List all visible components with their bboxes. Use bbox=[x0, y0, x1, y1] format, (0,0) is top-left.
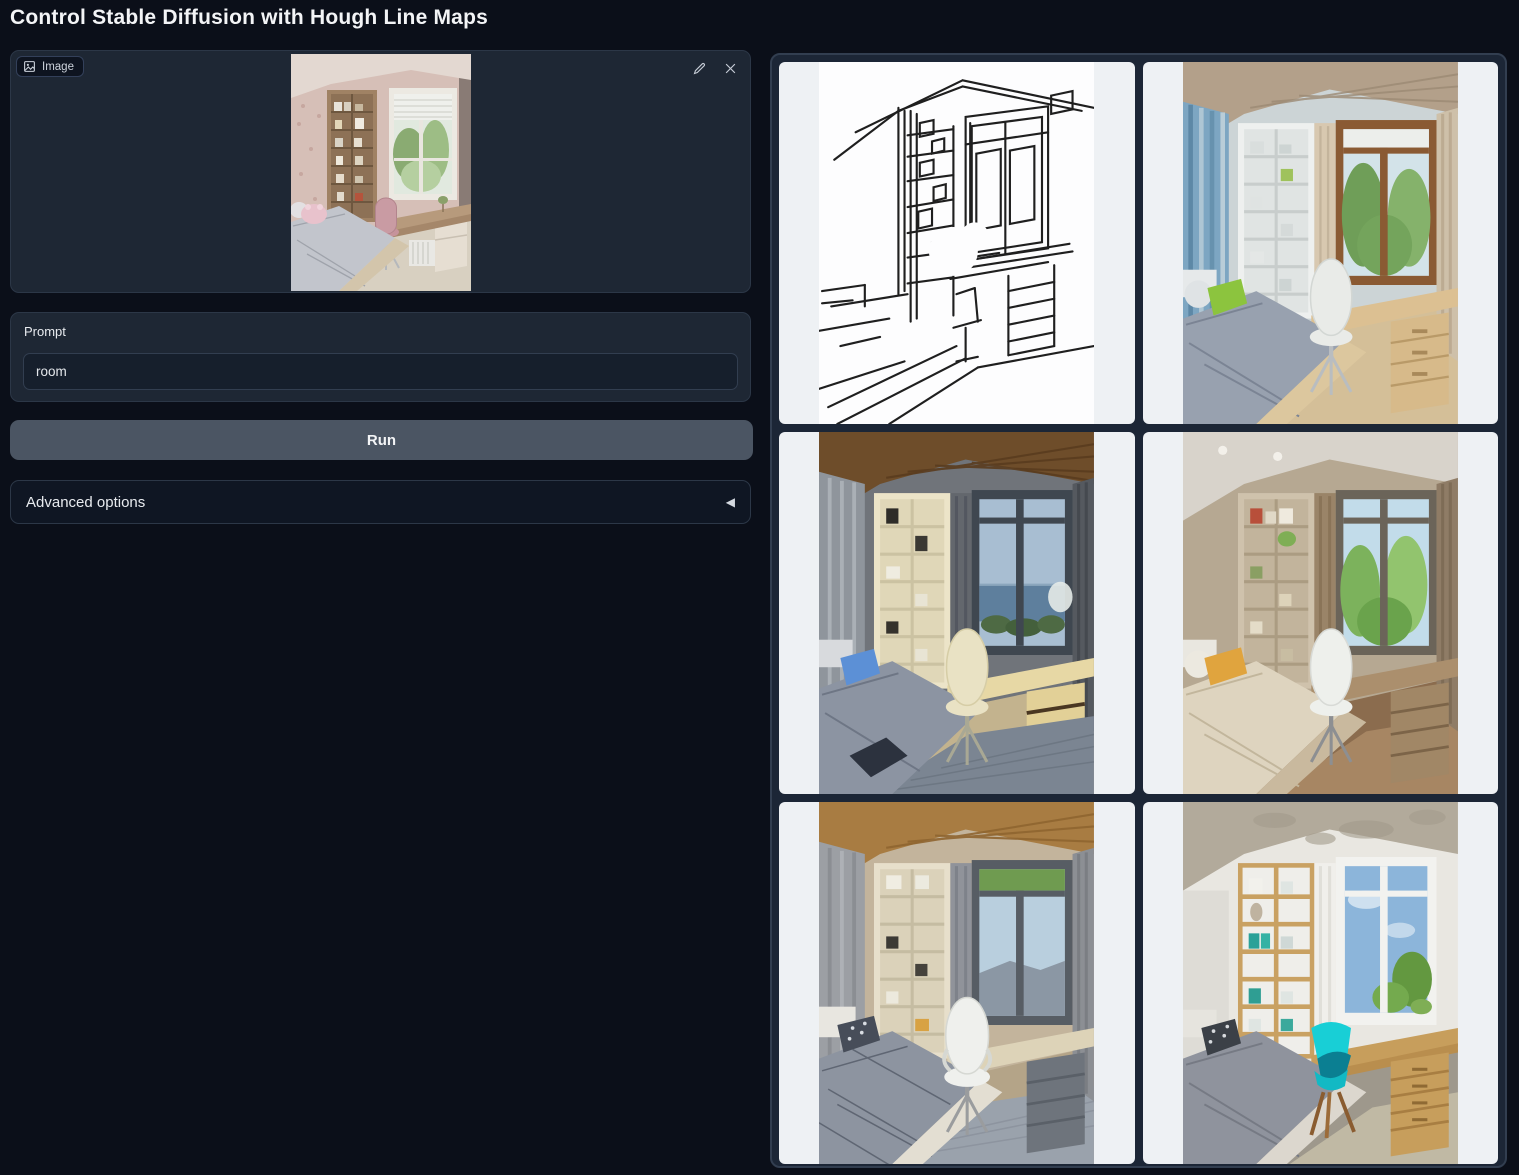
uploaded-room-photo bbox=[291, 54, 471, 291]
hough-line-map-image bbox=[819, 62, 1094, 424]
generated-room-image-5 bbox=[1183, 802, 1458, 1164]
gallery-item-generated-5[interactable] bbox=[1143, 802, 1499, 1164]
edit-image-button[interactable] bbox=[690, 59, 709, 78]
gallery-item-hough-line-map[interactable] bbox=[779, 62, 1135, 424]
clear-image-button[interactable] bbox=[721, 59, 740, 78]
pencil-icon bbox=[692, 61, 707, 76]
run-button[interactable]: Run bbox=[10, 420, 753, 460]
advanced-options-accordion[interactable]: Advanced options ◀ bbox=[10, 480, 751, 524]
generated-room-image-1 bbox=[1183, 62, 1458, 424]
gallery-item-generated-4[interactable] bbox=[779, 802, 1135, 1164]
uploaded-image-preview[interactable] bbox=[291, 54, 471, 291]
page-title: Control Stable Diffusion with Hough Line… bbox=[10, 6, 488, 30]
image-actions bbox=[690, 59, 740, 78]
generated-room-image-2 bbox=[819, 432, 1094, 794]
gallery-item-generated-2[interactable] bbox=[779, 432, 1135, 794]
generated-room-image-4 bbox=[819, 802, 1094, 1164]
gallery-item-generated-3[interactable] bbox=[1143, 432, 1499, 794]
image-component-label-text: Image bbox=[42, 61, 74, 73]
advanced-options-label: Advanced options bbox=[26, 494, 145, 511]
image-icon bbox=[23, 60, 36, 73]
collapse-arrow-icon: ◀ bbox=[726, 495, 735, 509]
prompt-block: Prompt bbox=[10, 312, 751, 402]
result-gallery bbox=[770, 53, 1507, 1168]
gallery-item-generated-1[interactable] bbox=[1143, 62, 1499, 424]
prompt-input[interactable] bbox=[23, 353, 738, 390]
image-upload-component[interactable]: Image bbox=[10, 50, 751, 293]
generated-room-image-3 bbox=[1183, 432, 1458, 794]
prompt-label: Prompt bbox=[24, 324, 66, 339]
image-component-label: Image bbox=[16, 56, 84, 77]
close-icon bbox=[723, 61, 738, 76]
